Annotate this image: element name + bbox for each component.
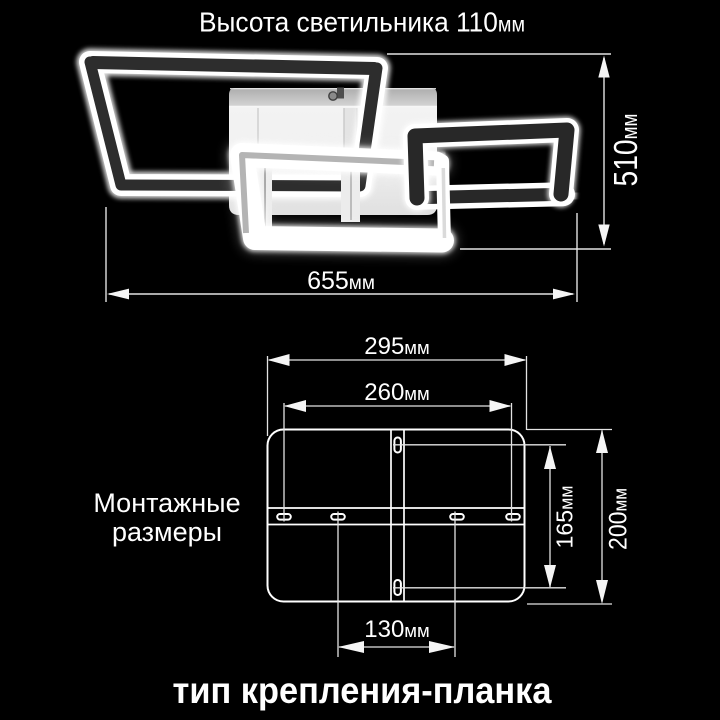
- svg-text:130мм: 130мм: [364, 616, 429, 643]
- svg-text:тип крепления-планка: тип крепления-планка: [173, 670, 552, 711]
- svg-text:295мм: 295мм: [364, 333, 429, 360]
- svg-text:260мм: 260мм: [364, 379, 429, 406]
- svg-text:165мм: 165мм: [552, 486, 578, 549]
- svg-text:510мм: 510мм: [607, 114, 644, 187]
- svg-text:655мм: 655мм: [307, 267, 375, 295]
- svg-text:Высота светильника 110мм: Высота светильника 110мм: [199, 7, 525, 38]
- svg-text:размеры: размеры: [112, 517, 222, 547]
- svg-text:200мм: 200мм: [605, 488, 633, 550]
- svg-text:Монтажные: Монтажные: [93, 488, 240, 518]
